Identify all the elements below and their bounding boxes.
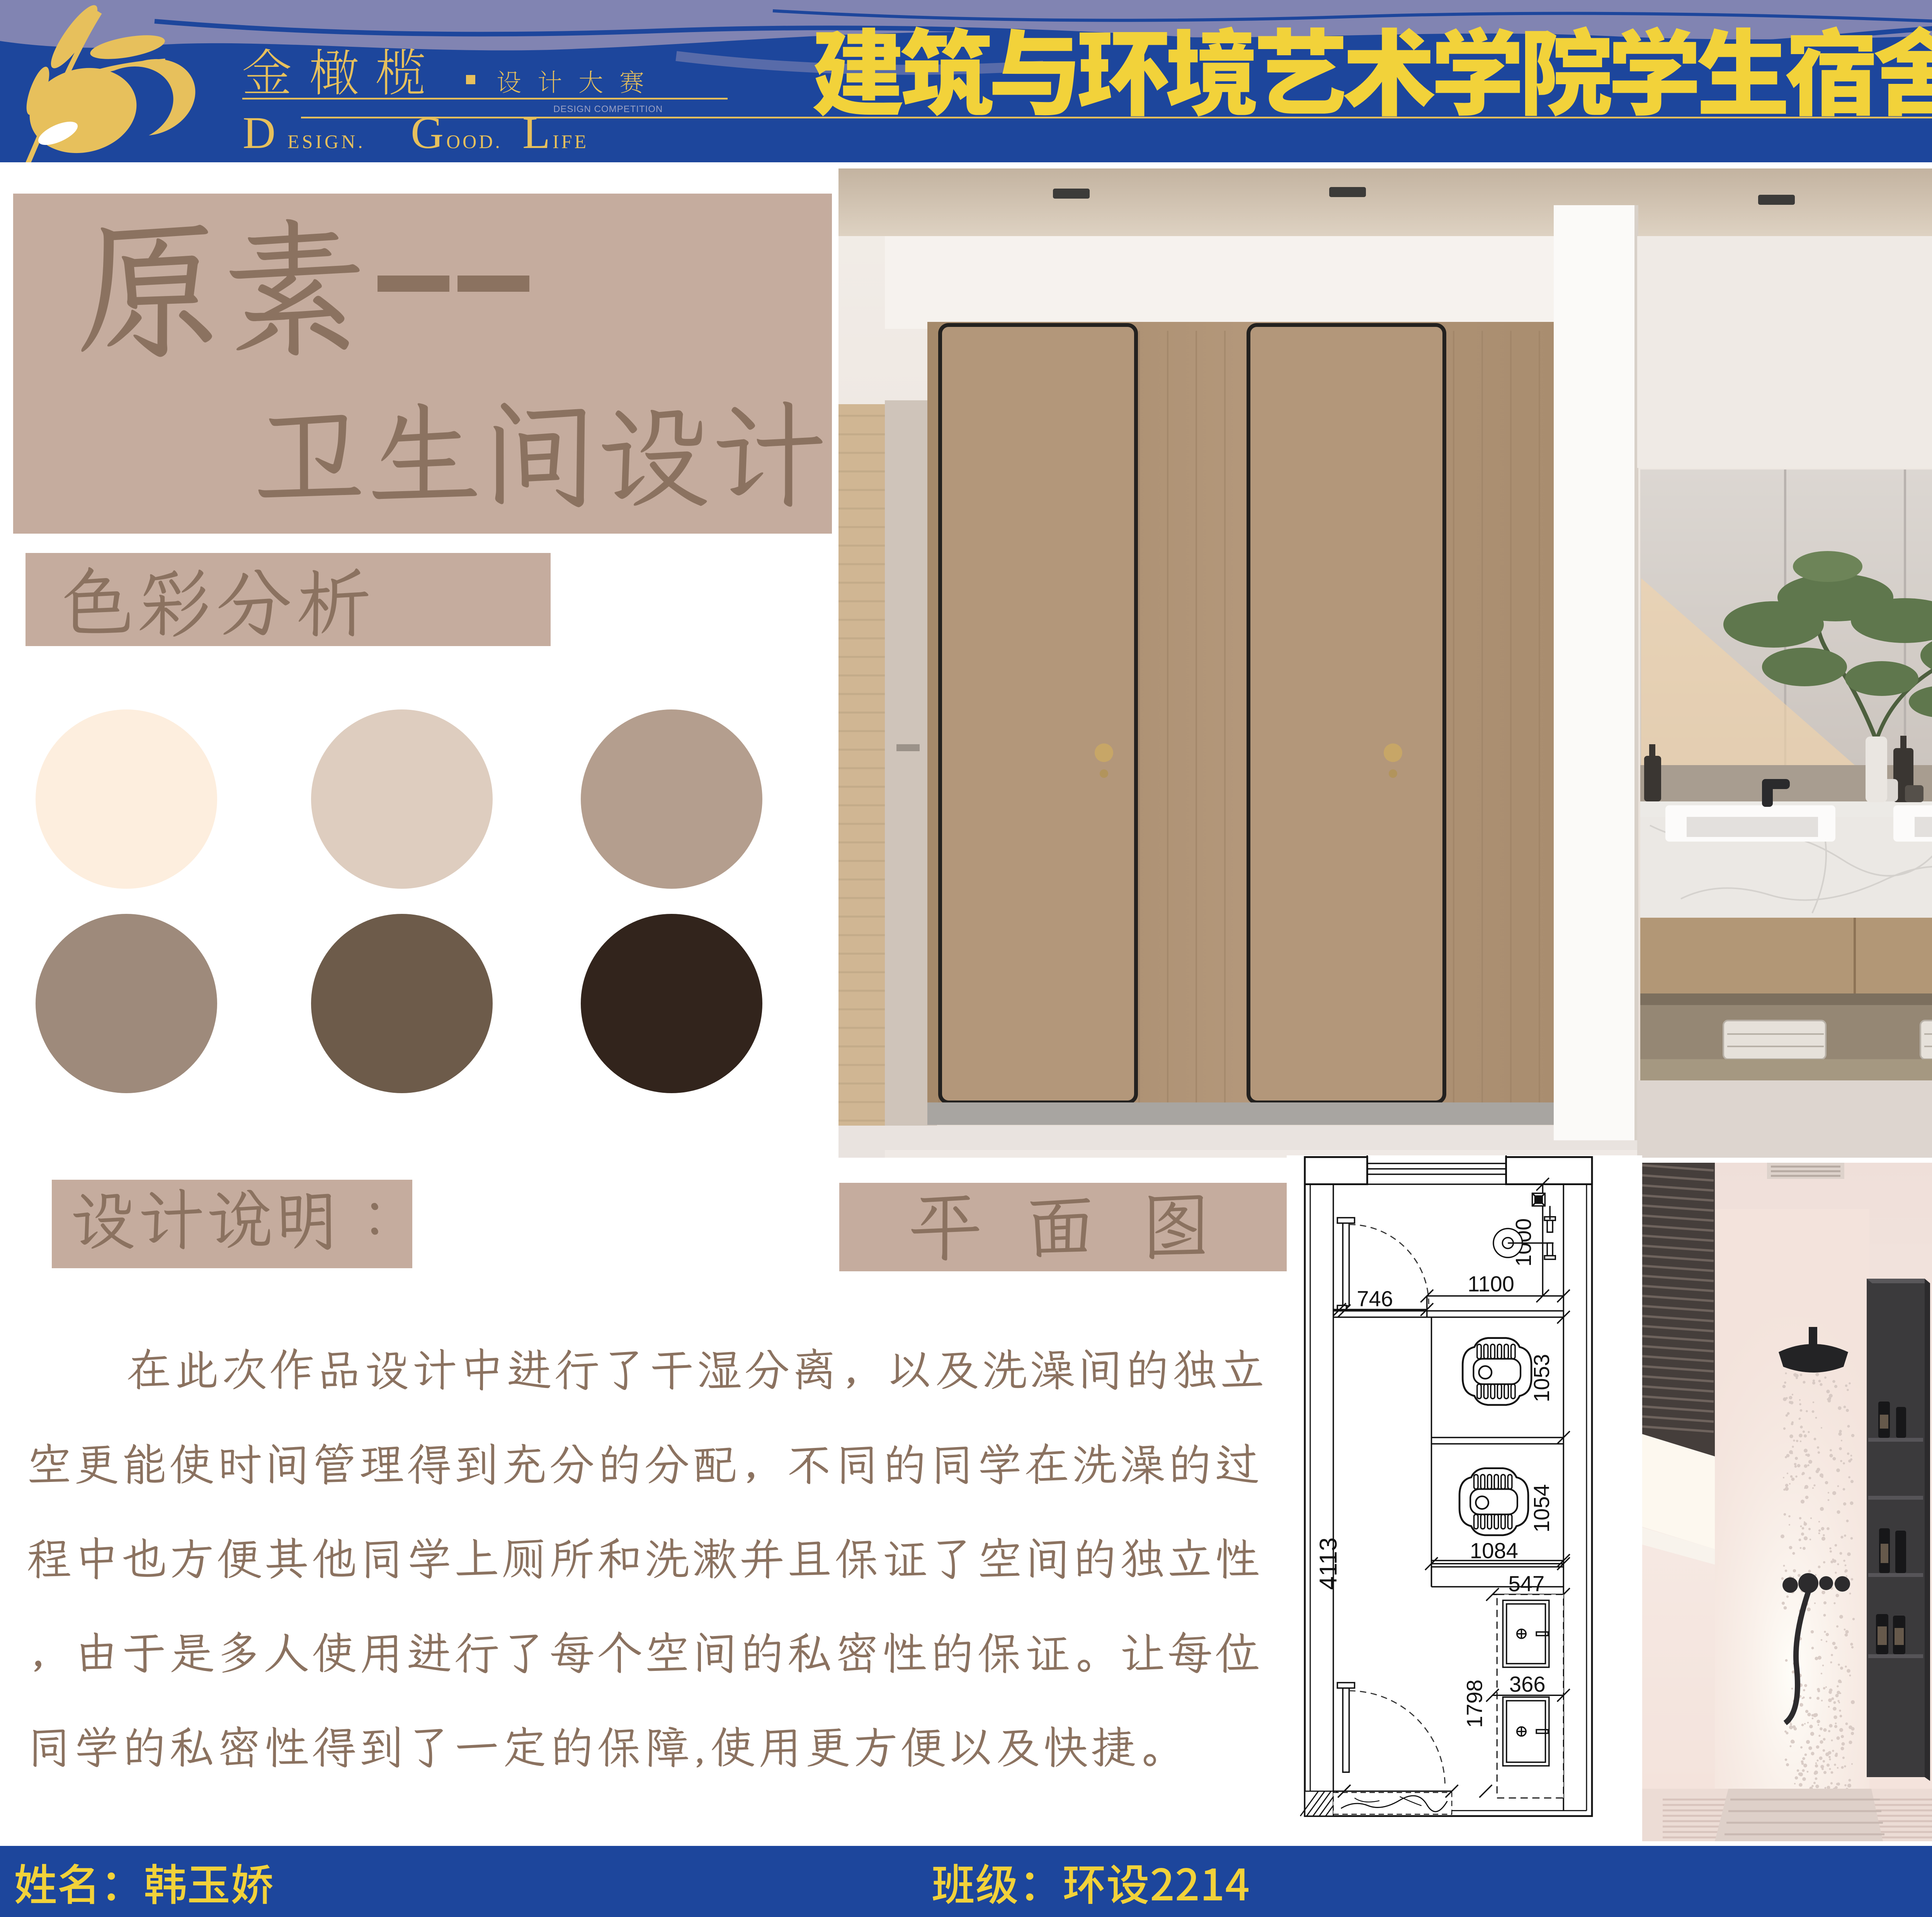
svg-text:OOD.: OOD. (446, 131, 502, 152)
svg-text:L: L (522, 107, 550, 158)
svg-text:ESIGN.: ESIGN. (287, 131, 366, 152)
svg-text:D: D (243, 107, 276, 158)
svg-text:G: G (411, 107, 444, 158)
svg-text:DESIGN COMPETITION: DESIGN COMPETITION (553, 104, 663, 114)
svg-text:IFE: IFE (553, 131, 588, 152)
